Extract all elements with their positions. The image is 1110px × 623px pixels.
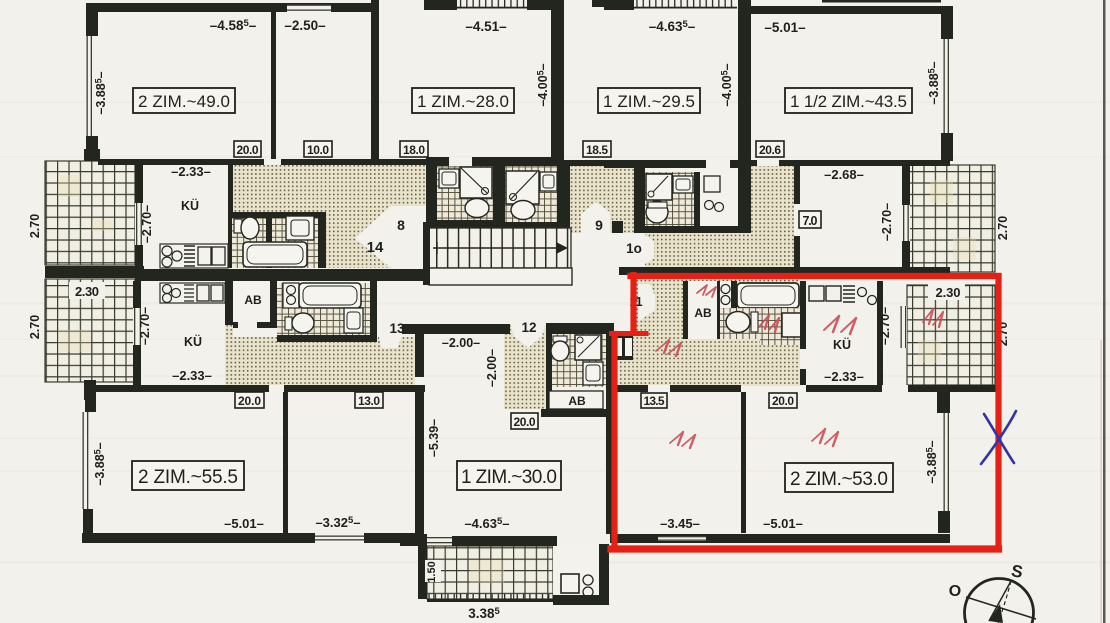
- svg-text:–2.33–: –2.33–: [824, 369, 864, 384]
- svg-text:–3.885–: –3.885–: [93, 442, 108, 485]
- svg-text:–4.635–: –4.635–: [649, 19, 696, 34]
- svg-text:–4.005–: –4.005–: [536, 63, 551, 106]
- svg-text:2.30: 2.30: [75, 284, 99, 299]
- svg-text:2 ZIM.~49.0: 2 ZIM.~49.0: [138, 92, 230, 111]
- svg-text:1 ZIM.~29.5: 1 ZIM.~29.5: [603, 92, 695, 111]
- svg-text:–4.005–: –4.005–: [720, 63, 735, 106]
- svg-text:1 ZIM.~30.0: 1 ZIM.~30.0: [461, 467, 557, 488]
- svg-text:KÜ: KÜ: [181, 198, 199, 213]
- svg-text:–5.01–: –5.01–: [224, 516, 264, 531]
- svg-text:2 ZIM.~53.0: 2 ZIM.~53.0: [790, 469, 888, 490]
- svg-text:–3.885–: –3.885–: [94, 71, 109, 114]
- svg-text:–4.585–: –4.585–: [210, 18, 257, 33]
- svg-text:13: 13: [389, 321, 405, 336]
- svg-text:18.5: 18.5: [586, 143, 608, 157]
- svg-text:–2.70–: –2.70–: [880, 203, 894, 241]
- svg-text:2.70: 2.70: [28, 315, 42, 339]
- svg-text:10.0: 10.0: [307, 143, 329, 157]
- svg-text:20.0: 20.0: [772, 394, 794, 408]
- svg-text:2.30: 2.30: [936, 285, 961, 300]
- svg-text:20.6: 20.6: [759, 143, 781, 157]
- svg-text:1.50: 1.50: [426, 561, 438, 582]
- svg-text:–2.68–: –2.68–: [824, 167, 864, 182]
- svg-text:KÜ: KÜ: [184, 334, 202, 349]
- svg-text:–2.70–: –2.70–: [878, 307, 892, 345]
- svg-text:–3.885–: –3.885–: [925, 440, 940, 483]
- svg-text:–5.01–: –5.01–: [763, 516, 803, 531]
- svg-text:O: O: [949, 583, 961, 600]
- svg-text:1 ZIM.~28.0: 1 ZIM.~28.0: [417, 92, 509, 111]
- svg-text:14: 14: [367, 239, 384, 256]
- svg-text:13.0: 13.0: [358, 394, 380, 408]
- svg-text:18.0: 18.0: [403, 143, 425, 157]
- svg-text:–5.39–: –5.39–: [427, 419, 441, 457]
- svg-text:1 1/2 ZIM.~43.5: 1 1/2 ZIM.~43.5: [790, 92, 907, 111]
- svg-text:AB: AB: [568, 394, 586, 408]
- svg-text:KÜ: KÜ: [833, 337, 851, 352]
- svg-text:20.0: 20.0: [237, 143, 259, 157]
- svg-text:–2.70–: –2.70–: [140, 205, 154, 243]
- svg-text:AB: AB: [694, 306, 712, 320]
- svg-text:–3.885–: –3.885–: [927, 61, 942, 104]
- svg-text:–2.33–: –2.33–: [171, 164, 211, 179]
- svg-text:–2.00–: –2.00–: [442, 336, 480, 350]
- svg-text:7.0: 7.0: [803, 214, 818, 228]
- svg-text:–2.33–: –2.33–: [172, 368, 212, 383]
- svg-text:20.0: 20.0: [238, 394, 261, 408]
- svg-text:–5.01–: –5.01–: [764, 20, 806, 35]
- svg-text:2 ZIM.~55.5: 2 ZIM.~55.5: [138, 467, 238, 488]
- svg-text:–3.325–: –3.325–: [315, 515, 360, 530]
- svg-text:–2.00–: –2.00–: [485, 349, 499, 387]
- svg-text:–4.635–: –4.635–: [464, 516, 509, 531]
- svg-text:–2.50–: –2.50–: [284, 18, 326, 33]
- svg-text:9: 9: [595, 217, 603, 233]
- svg-text:2.70: 2.70: [28, 214, 42, 238]
- svg-text:–3.45–: –3.45–: [660, 516, 700, 531]
- svg-text:2.70: 2.70: [996, 216, 1010, 240]
- svg-text:13.5: 13.5: [644, 394, 665, 408]
- svg-text:1o: 1o: [626, 241, 642, 256]
- svg-text:–4.51–: –4.51–: [465, 19, 507, 34]
- svg-text:20.0: 20.0: [514, 415, 536, 429]
- svg-text:–2.70–: –2.70–: [138, 307, 152, 345]
- svg-text:AB: AB: [244, 293, 262, 307]
- svg-text:8: 8: [397, 217, 405, 233]
- svg-text:12: 12: [521, 320, 536, 335]
